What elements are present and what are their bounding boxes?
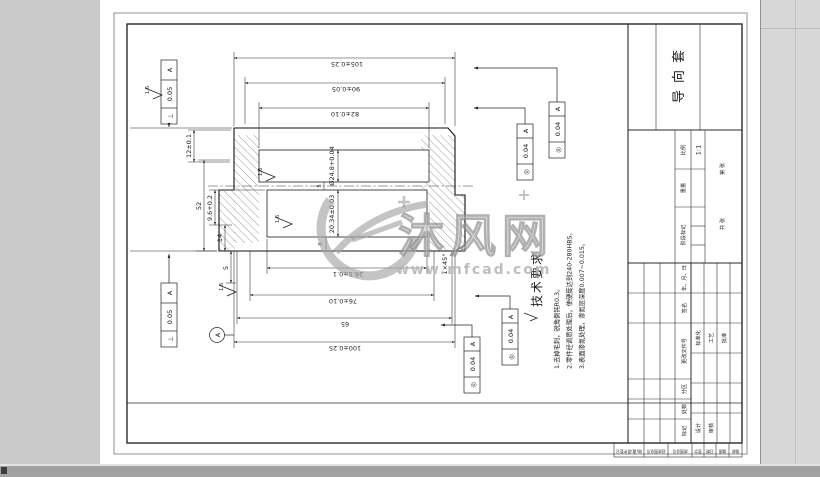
dim-90: 90±0.05	[332, 85, 360, 93]
label-mark: 标记	[680, 426, 688, 436]
dim-9-6: 9.6+0.2	[206, 195, 214, 221]
label-count: 处数	[680, 403, 688, 414]
tech-req-title: 技术要求	[530, 251, 544, 307]
label-sign: 签名	[680, 303, 688, 313]
fcf2-tolerance: 0.05	[166, 310, 174, 324]
label-sheet-total: 共 张	[718, 217, 726, 230]
dim-step6: 6	[318, 242, 324, 245]
hatch-bottom-wall-b	[429, 195, 465, 251]
fcf5-tolerance: 0.04	[469, 357, 477, 371]
perpendicularity-icon: ⊥	[167, 336, 175, 342]
label-approve: 批准	[720, 333, 728, 343]
fcf4-datum: A	[554, 106, 562, 111]
dim-5: 5	[222, 266, 230, 270]
margin-cell-label: 底图总号	[672, 449, 687, 454]
tech-req-item: 3.表面渗氮处理，渗氮层深度0.007~0.015。	[577, 240, 586, 369]
perpendicularity-icon: ⊥	[167, 113, 175, 119]
dim-82: 82±0.10	[331, 110, 359, 118]
label-process: 工艺	[708, 333, 715, 343]
tech-req-item: 2.零件经调质处理后，使硬度达到240-280HBS。	[565, 229, 574, 369]
concentricity-icon: ◎	[470, 382, 478, 388]
roughness-other-icon	[524, 313, 537, 321]
cad-viewer-window: { "watermark": { "brand": "沐风网", "url": …	[0, 0, 820, 477]
roughness-icon: 1.6	[219, 283, 236, 296]
fcf6-tolerance: 0.04	[507, 329, 515, 343]
concentricity-icon: ◎	[508, 354, 516, 360]
svg-text:1.6: 1.6	[275, 215, 281, 223]
label-stage: 阶段标记	[679, 225, 687, 246]
margin-cell-label: 签字	[694, 449, 702, 454]
tech-req-item: 1.去掉毛刺，锐角倒钝R0.3。	[552, 286, 561, 369]
label-standard: 标准化	[694, 330, 702, 346]
dim-14: 14	[216, 234, 224, 242]
right-panel-strip	[761, 0, 820, 464]
svg-text:1.6: 1.6	[258, 168, 264, 176]
label-zone: 分区	[680, 384, 688, 394]
dim-26-5: 26.5±0.1	[333, 270, 363, 278]
dim-65: 65	[341, 320, 349, 328]
roughness-icon: 1.6	[145, 86, 162, 99]
margin-cell-label: 描图	[719, 449, 727, 454]
bore-large	[259, 150, 429, 182]
scrollbar-track[interactable]	[795, 0, 796, 464]
dim-100: 100±0.25	[329, 344, 361, 352]
part-section-view	[208, 128, 474, 251]
datum-a-label: A	[214, 332, 222, 337]
margin-block-texts: 借(通)用件登记 旧底图总号 底图总号 签字 日期 描图 描校	[616, 449, 739, 454]
margin-cell-label: 日期	[706, 449, 714, 454]
svg-text:1.6: 1.6	[145, 86, 151, 94]
status-corner-mark	[1, 467, 7, 474]
svg-text:1.6: 1.6	[219, 283, 225, 291]
scale-value: 1:1	[695, 145, 703, 155]
fcf6-datum: A	[507, 314, 515, 319]
label-design: 设计	[694, 423, 702, 433]
fcf3-tolerance: 0.04	[522, 144, 530, 158]
dim-bore-small: 20.34±0.03	[328, 195, 336, 234]
label-change-file: 更改文件号	[680, 338, 688, 364]
technical-requirements: 技术要求 1.去掉毛刺，锐角倒钝R0.3。 2.零件经调质处理后，使硬度达到24…	[530, 229, 586, 369]
label-scale: 比例	[679, 145, 687, 155]
dim-105: 105±0.25	[331, 60, 363, 68]
fcf1-tolerance: 0.05	[166, 87, 174, 101]
fcf4-tolerance: 0.04	[554, 122, 562, 136]
concentricity-icon: ◎	[555, 147, 563, 153]
dim-bore-large: Ø24.8+0.04	[328, 146, 336, 186]
dim-12: 12±0.1	[185, 134, 193, 158]
margin-cell-label: 借(通)用件登记	[616, 449, 642, 454]
drawing-sheet-rotated: 105±0.25 90±0.05 82±0.10 26.5±0.1 76±0.1…	[100, 0, 764, 464]
dim-52: 52	[195, 202, 203, 210]
label-sheet-page: 第 张	[718, 162, 726, 175]
margin-cell-label: 描校	[732, 449, 740, 454]
fcf2-datum: A	[166, 290, 174, 295]
dim-chamfer: 1×45°	[441, 253, 449, 274]
drawing-sheet-svg: 105±0.25 90±0.05 82±0.10 26.5±0.1 76±0.1…	[100, 0, 760, 464]
panel-divider	[761, 28, 820, 29]
label-date: 年、月、日	[680, 265, 688, 291]
bore-small	[267, 190, 427, 237]
margin-cell-label: 旧底图总号	[646, 449, 665, 454]
fcf5-datum: A	[469, 341, 477, 346]
label-weight: 重量	[679, 183, 687, 193]
dim-step5: 5	[317, 184, 323, 187]
fcf3-datum: A	[522, 128, 530, 133]
part-name: 导向套	[671, 43, 687, 103]
label-check: 审核	[707, 423, 715, 433]
fcf1-datum: A	[166, 67, 174, 72]
hatch-top-wall	[234, 135, 259, 243]
dim-76: 76±0.10	[329, 297, 357, 305]
title-block-texts: 标记 处数 分区 更改文件号 签名 年、月、日 设计 审核 标准化 工艺 批准 …	[671, 43, 728, 436]
bottom-scrollbar[interactable]	[0, 464, 820, 477]
concentricity-icon: ◎	[523, 169, 531, 175]
